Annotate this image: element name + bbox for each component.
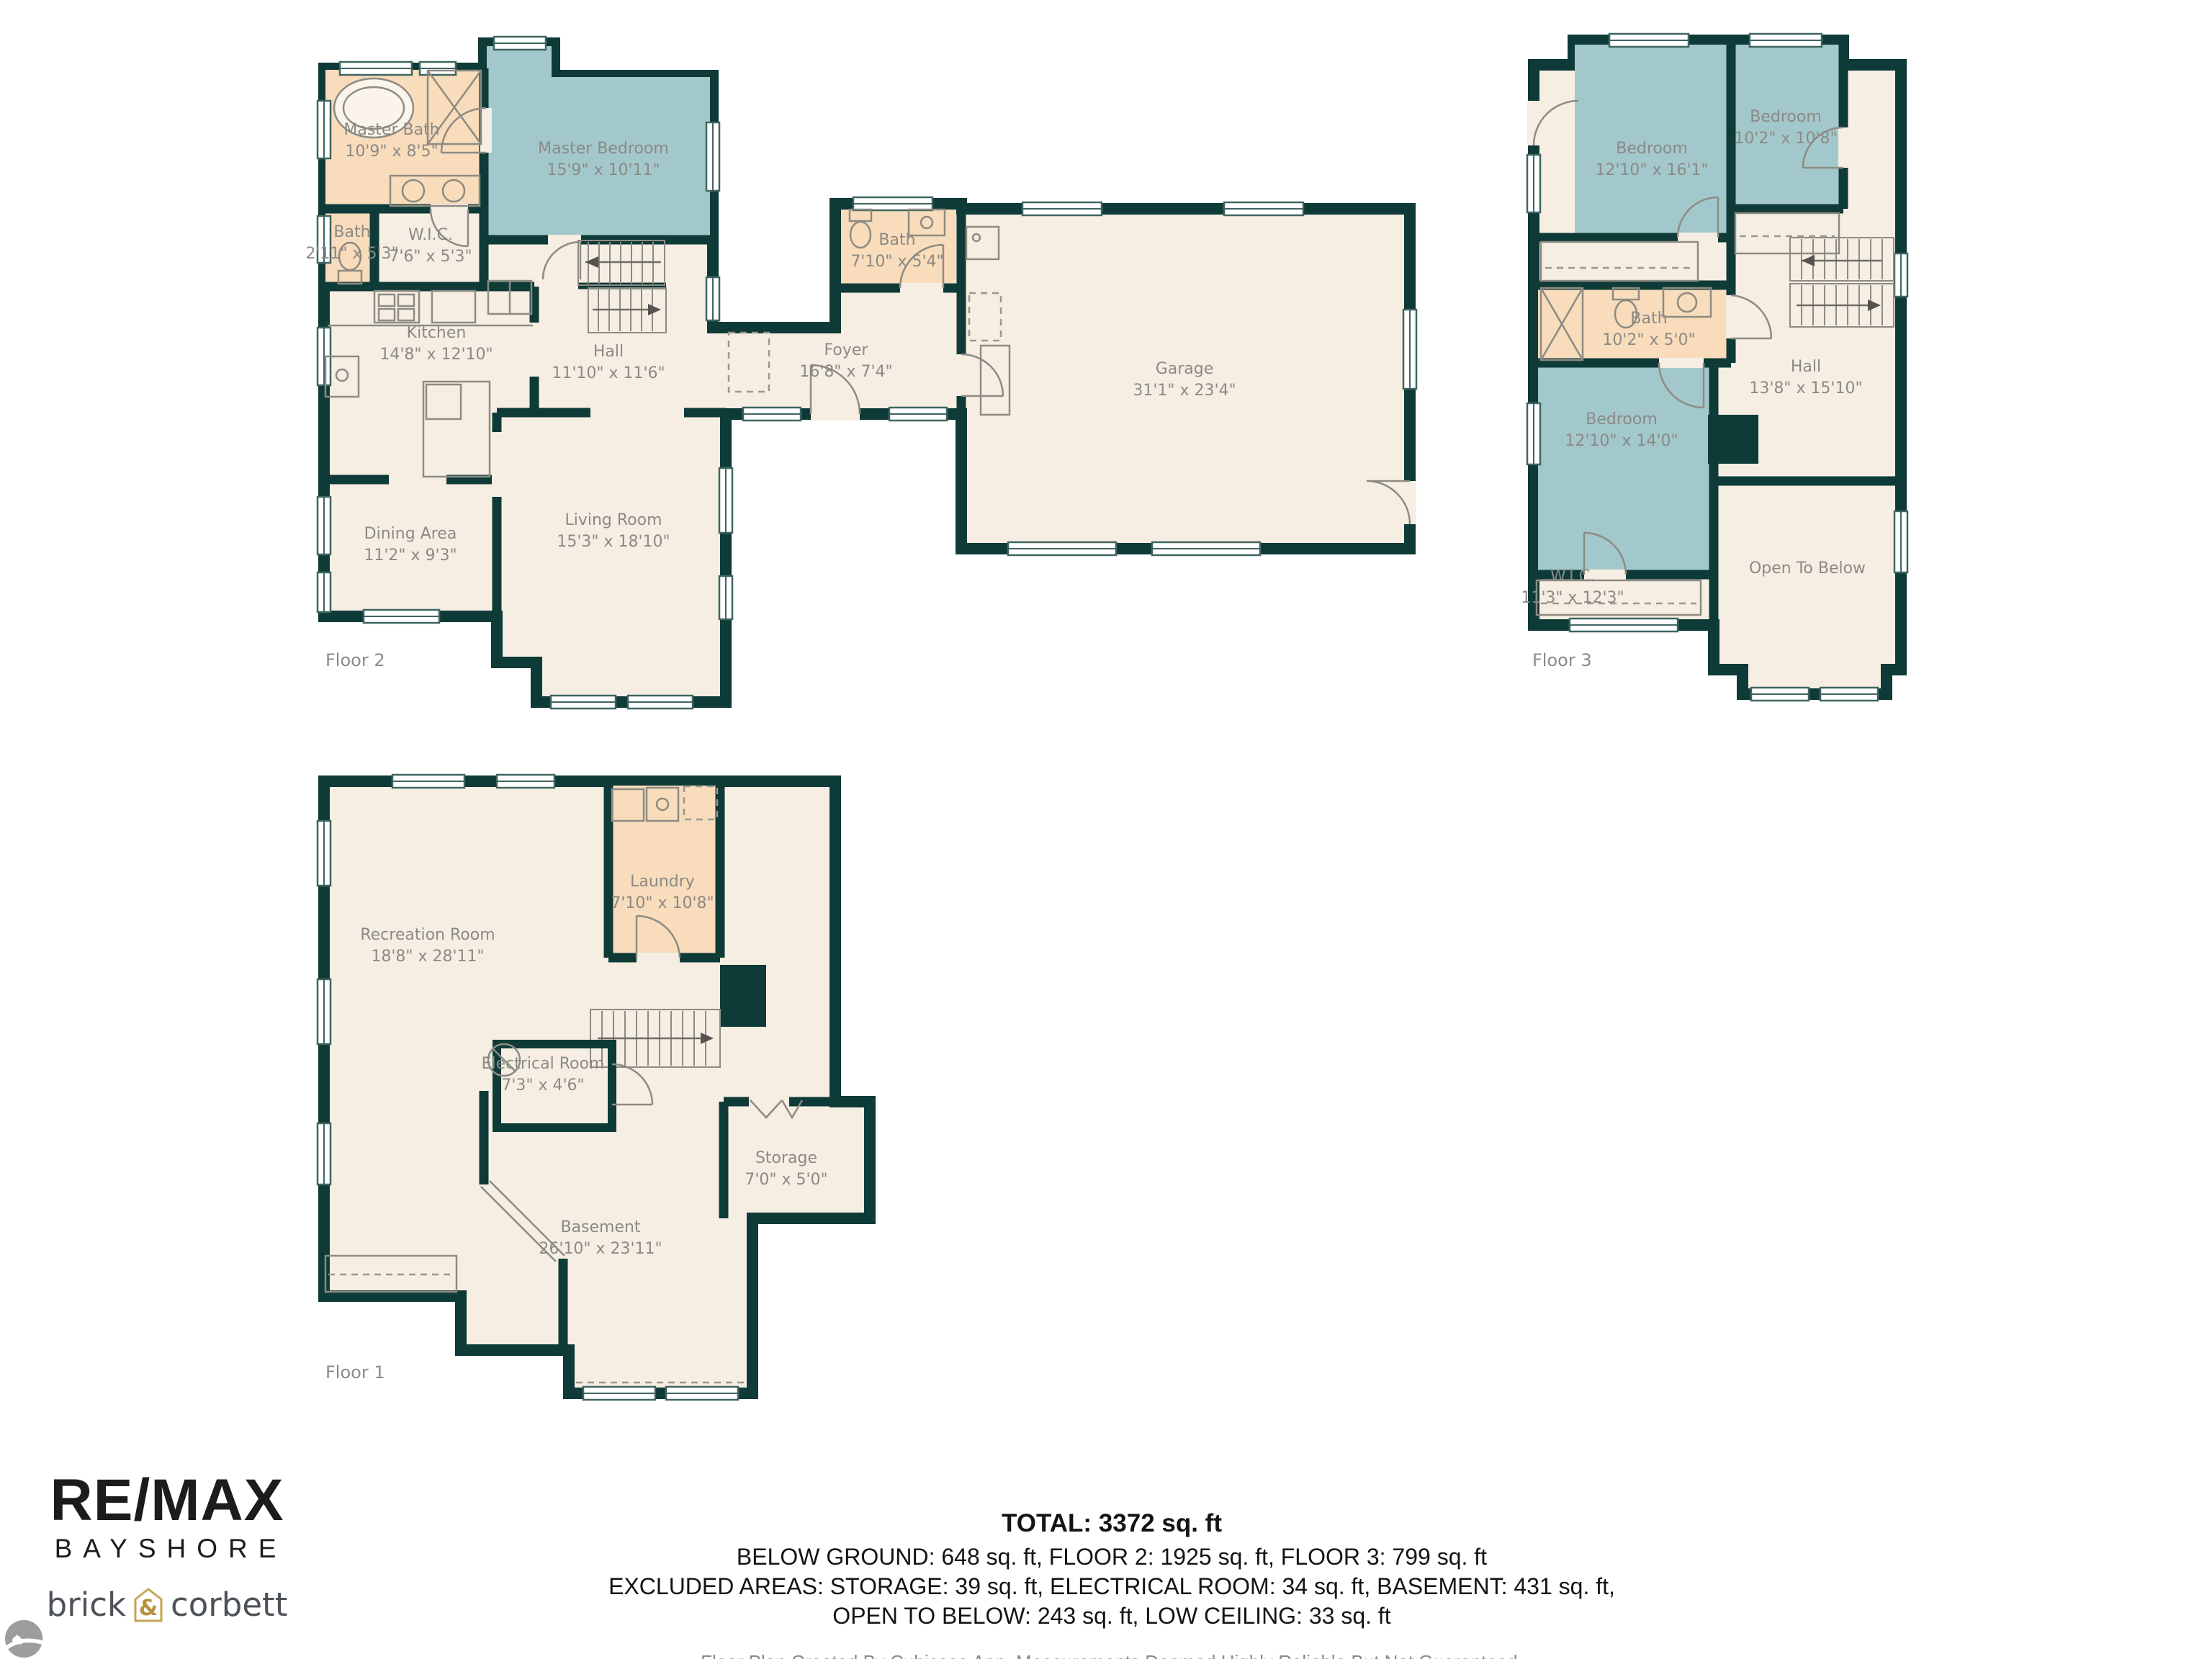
room-label-bath-small: Bath2'11" x 5'3" xyxy=(305,222,398,265)
room-label-open-to-below: Open To Below xyxy=(1749,558,1866,580)
room-label-garage: Garage31'1" x 23'4" xyxy=(1133,359,1236,402)
svg-text:&: & xyxy=(139,1596,158,1621)
total-area-text: TOTAL: 3372 sq. ft xyxy=(608,1509,1615,1538)
excluded-areas-text-1: EXCLUDED AREAS: STORAGE: 39 sq. ft, ELEC… xyxy=(608,1573,1615,1600)
room-label-bedroom-lower: Bedroom12'10" x 14'0" xyxy=(1565,409,1678,452)
cubicasa-logo xyxy=(3,1619,48,1659)
house-ampersand-icon: & xyxy=(132,1586,165,1624)
room-label-bath-garage: Bath7'10" x 5'4" xyxy=(850,230,943,273)
floor3-tag: Floor 3 xyxy=(1532,650,1592,670)
room-label-living: Living Room15'3" x 18'10" xyxy=(557,510,670,553)
brokerage-logo: RE/MAX BAYSHORE brick & corbett xyxy=(46,1470,288,1624)
room-label-hall-f3: Hall13'8" x 15'10" xyxy=(1749,356,1862,400)
corbett-text: corbett xyxy=(171,1586,287,1624)
room-label-foyer: Foyer16'8" x 7'4" xyxy=(799,340,892,383)
room-label-laundry: Laundry7'10" x 10'8" xyxy=(611,871,714,914)
brick-text: brick xyxy=(47,1586,126,1624)
floor1-tag: Floor 1 xyxy=(325,1362,385,1382)
brick-and-corbett-logo: brick & corbett xyxy=(46,1586,288,1624)
master-bedroom-nook-area xyxy=(487,46,552,78)
bedroom-lower-area xyxy=(1538,364,1712,573)
bayshore-wordmark: BAYSHORE xyxy=(46,1534,288,1564)
room-label-wic-f3: W.I.C.11'3" x 12'3" xyxy=(1521,566,1624,609)
disclaimer-text: Floor Plan Created By Cubicasa App. Meas… xyxy=(608,1651,1615,1659)
room-label-storage: Storage7'0" x 5'0" xyxy=(745,1148,827,1191)
room-label-bedroom-large: Bedroom12'10" x 16'1" xyxy=(1595,138,1708,181)
floor2-tag: Floor 2 xyxy=(325,650,385,670)
room-label-bedroom-small: Bedroom10'2" x 10'8" xyxy=(1734,107,1837,150)
excluded-areas-text-2: OPEN TO BELOW: 243 sq. ft, LOW CEILING: … xyxy=(608,1603,1615,1629)
low-ceiling-block xyxy=(720,965,766,1027)
floorplan-canvas: Master Bath10'9" x 8'5" Master Bedroom15… xyxy=(0,0,2212,1659)
room-label-wic: W.I.C.7'6" x 5'3" xyxy=(389,225,472,268)
room-label-bath-f3: Bath10'2" x 5'0" xyxy=(1602,308,1695,351)
room-label-master-bath: Master Bath10'9" x 8'5" xyxy=(343,120,439,163)
room-label-recreation: Recreation Room18'8" x 28'11" xyxy=(360,925,495,968)
room-label-master-bedroom: Master Bedroom15'9" x 10'11" xyxy=(538,138,669,181)
room-label-dining: Dining Area11'2" x 9'3" xyxy=(364,523,457,567)
floor-areas-text: BELOW GROUND: 648 sq. ft, FLOOR 2: 1925 … xyxy=(608,1544,1615,1570)
room-label-electrical: Electrical Room7'3" x 4'6" xyxy=(482,1053,605,1097)
room-label-hall-f2: Hall11'10" x 11'6" xyxy=(552,341,665,385)
room-label-kitchen: Kitchen14'8" x 12'10" xyxy=(379,323,493,366)
remax-wordmark: RE/MAX xyxy=(46,1470,288,1531)
low-ceiling-block xyxy=(1708,415,1758,464)
room-label-basement: Basement26'10" x 23'11" xyxy=(539,1217,662,1260)
area-summary: TOTAL: 3372 sq. ft BELOW GROUND: 648 sq.… xyxy=(608,1509,1615,1659)
